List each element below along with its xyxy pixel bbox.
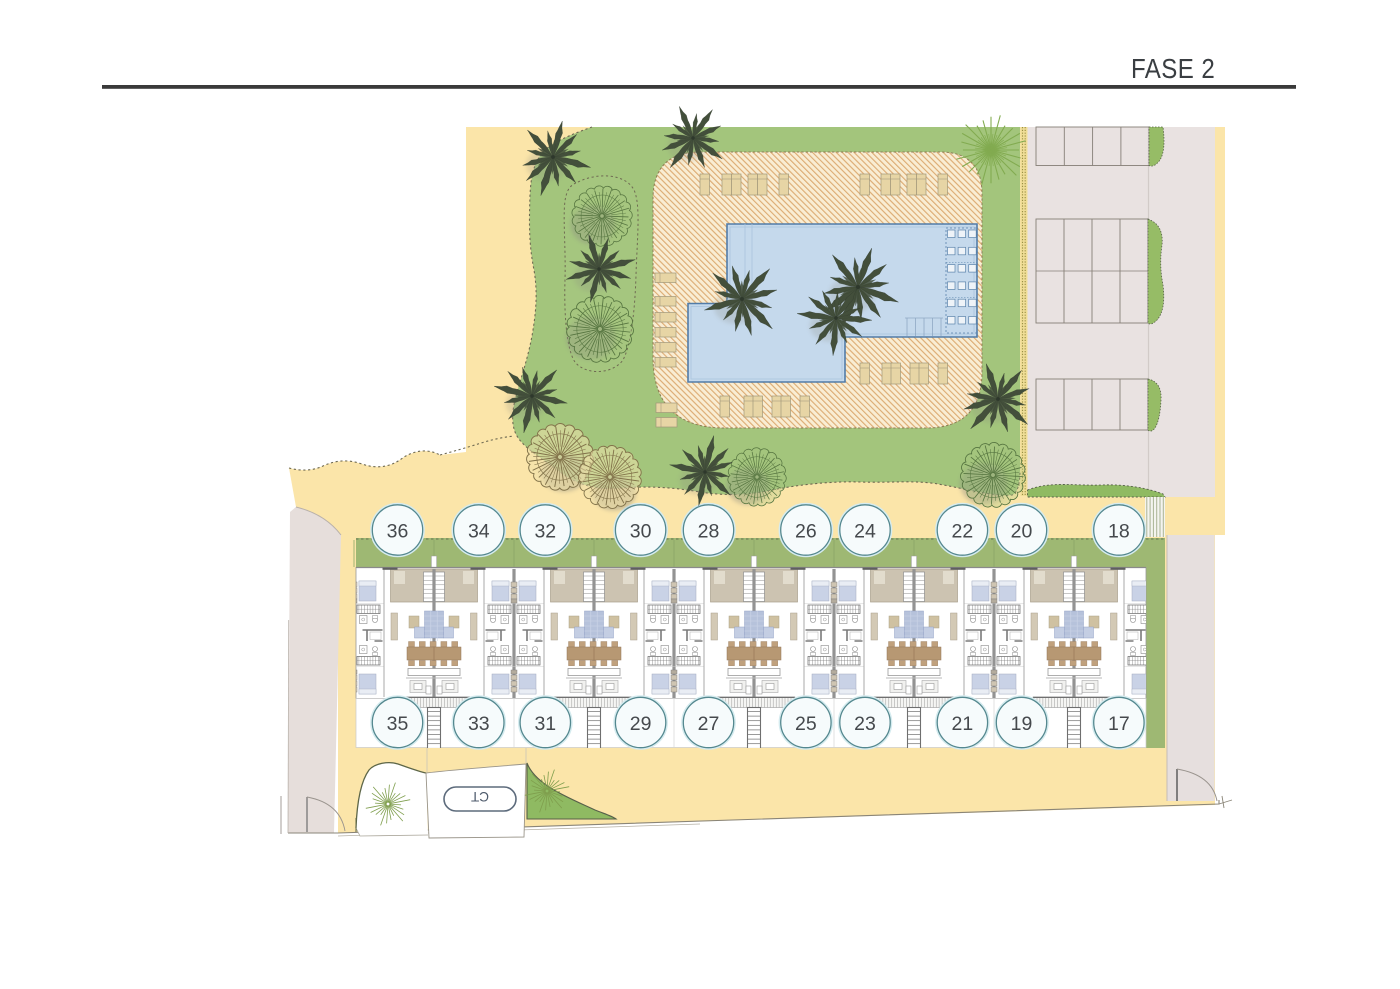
svg-text:22: 22 [952, 521, 974, 543]
svg-text:FASE 2: FASE 2 [1131, 52, 1215, 84]
svg-text:27: 27 [698, 713, 720, 735]
svg-text:24: 24 [854, 521, 876, 543]
svg-text:29: 29 [630, 713, 652, 735]
svg-text:35: 35 [387, 713, 409, 735]
svg-text:34: 34 [468, 521, 490, 543]
svg-text:23: 23 [854, 713, 876, 735]
svg-text:18: 18 [1108, 521, 1130, 543]
svg-text:36: 36 [387, 521, 409, 543]
svg-text:33: 33 [468, 713, 490, 735]
svg-text:CT: CT [471, 789, 489, 804]
svg-text:25: 25 [795, 713, 817, 735]
svg-text:20: 20 [1011, 521, 1033, 543]
svg-text:32: 32 [534, 521, 556, 543]
svg-text:26: 26 [795, 521, 817, 543]
svg-text:30: 30 [630, 521, 652, 543]
svg-text:31: 31 [534, 713, 556, 735]
svg-text:19: 19 [1011, 713, 1033, 735]
svg-text:28: 28 [698, 521, 720, 543]
svg-text:17: 17 [1108, 713, 1130, 735]
svg-text:21: 21 [952, 713, 974, 735]
